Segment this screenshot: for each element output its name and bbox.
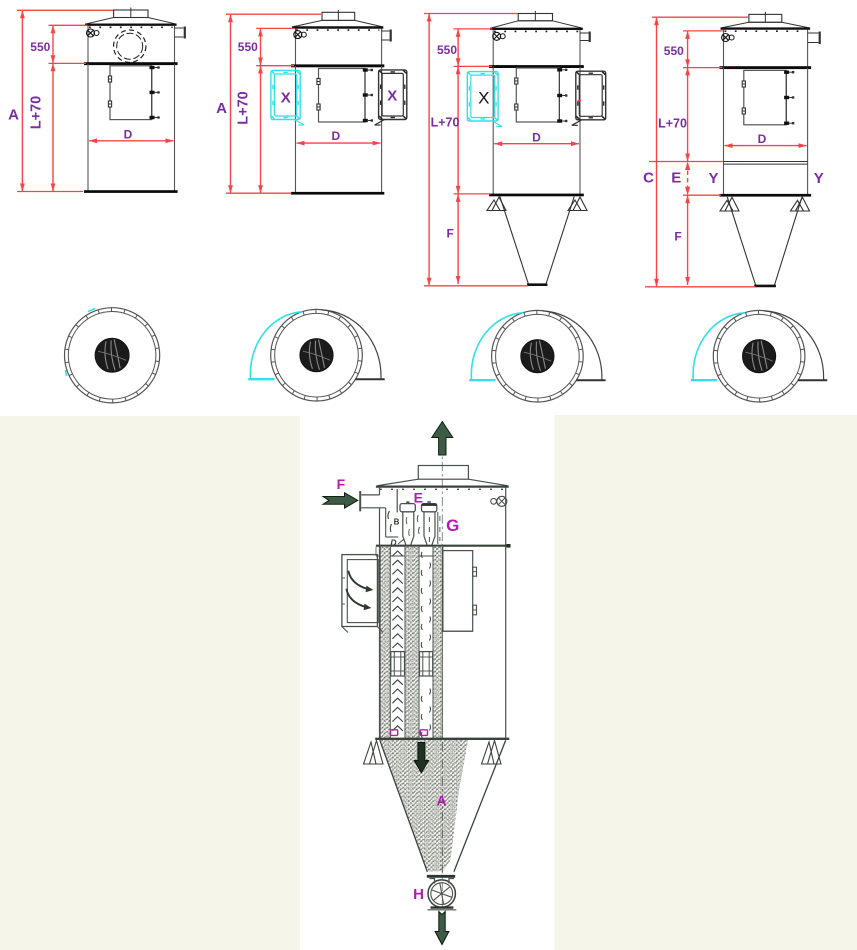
svg-text:D: D — [124, 128, 133, 142]
svg-text:D: D — [532, 130, 541, 144]
svg-text:Y: Y — [708, 170, 718, 187]
svg-text:Y: Y — [814, 170, 824, 187]
svg-text:550: 550 — [30, 40, 50, 54]
svg-text:X: X — [478, 89, 489, 108]
svg-text:550: 550 — [238, 40, 258, 54]
svg-text:D: D — [758, 132, 767, 146]
svg-text:D: D — [331, 129, 340, 143]
svg-text:550: 550 — [437, 43, 457, 57]
svg-text:F: F — [447, 227, 454, 241]
svg-text:L+70: L+70 — [658, 116, 687, 130]
svg-text:E: E — [414, 489, 423, 505]
svg-text:L+70: L+70 — [29, 96, 45, 129]
svg-text:X: X — [281, 89, 291, 106]
svg-text:B: B — [394, 518, 400, 527]
svg-text:C: C — [643, 169, 654, 186]
svg-text:H: H — [413, 886, 424, 903]
svg-text:A: A — [436, 793, 446, 809]
svg-text:G: G — [446, 516, 459, 535]
svg-text:L+70: L+70 — [431, 115, 460, 129]
svg-text:F: F — [674, 230, 681, 244]
svg-text:550: 550 — [664, 44, 684, 58]
svg-text:F: F — [337, 476, 346, 492]
svg-text:A: A — [8, 106, 19, 123]
svg-text:A: A — [216, 100, 227, 117]
svg-text:E: E — [671, 169, 681, 186]
svg-text:X: X — [387, 88, 397, 105]
svg-text:L+70: L+70 — [236, 91, 252, 124]
